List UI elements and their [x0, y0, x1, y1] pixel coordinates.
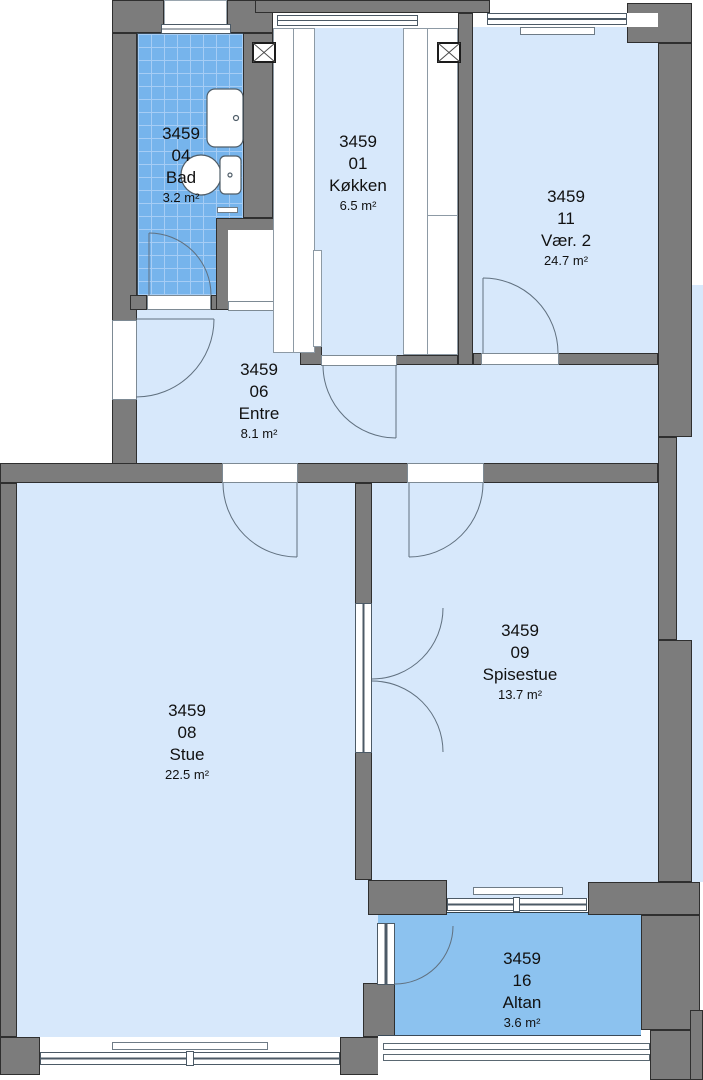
room-vaer2-floor [473, 13, 658, 353]
spisestue-door-opening [407, 463, 484, 483]
room-area: 3.2 m² [162, 189, 200, 206]
room-area: 6.5 m² [329, 197, 387, 214]
floor-plan: 3459 04 Bad 3.2 m² 3459 01 Køkken 6.5 m²… [0, 0, 703, 1080]
room-number: 09 [483, 642, 558, 664]
room-number: 11 [541, 208, 591, 230]
wall-segment [243, 33, 273, 218]
room-name: Entre [239, 403, 280, 425]
bathroom-shelf [217, 207, 238, 213]
wall-segment [112, 33, 137, 322]
bathroom-door-opening [147, 295, 211, 310]
room-area: 3.6 m² [503, 1014, 542, 1031]
room-name: Spisestue [483, 664, 558, 686]
wall-segment [658, 437, 677, 640]
kitchen-counter-left [273, 28, 294, 353]
room-name: Vær. 2 [541, 230, 591, 252]
radiator [112, 1042, 268, 1050]
kitchen-counter-right [403, 28, 428, 355]
kitchen-counter-divider [427, 215, 458, 216]
room-number: 04 [162, 145, 200, 167]
room-number: 08 [165, 722, 209, 744]
kitchen-counter-right [427, 28, 458, 355]
wall-segment [355, 752, 372, 880]
wall-segment [297, 463, 408, 483]
stue-door-opening [222, 463, 298, 483]
vaer2-door-opening [481, 353, 559, 365]
room-label-stue: 3459 08 Stue 22.5 m² [165, 700, 209, 783]
wall-segment [483, 463, 658, 483]
room-number: 01 [329, 153, 387, 175]
spisestue-window-mullion [513, 897, 520, 912]
wall-segment [588, 882, 700, 915]
kitchen-counter-left [293, 28, 315, 353]
balcony-door-frame [377, 923, 395, 985]
balcony-door-recess [357, 915, 378, 987]
entrance-door-opening [112, 320, 137, 400]
wall-segment [130, 295, 147, 310]
bathroom-window [161, 24, 231, 34]
wall-segment [0, 463, 223, 483]
room-area: 8.1 m² [239, 425, 280, 442]
kitchen-door-opening [321, 355, 397, 366]
wall-segment [458, 13, 473, 365]
radiator [520, 27, 595, 35]
room-number: 06 [239, 381, 280, 403]
wall-segment [112, 398, 137, 465]
radiator [473, 887, 563, 895]
room-id: 3459 [239, 359, 280, 381]
room-id: 3459 [541, 186, 591, 208]
bath-window-recess [164, 0, 227, 26]
room-area: 22.5 m² [165, 766, 209, 783]
room-label-entre: 3459 06 Entre 8.1 m² [239, 359, 280, 442]
room-label-altan: 3459 16 Altan 3.6 m² [503, 948, 542, 1031]
room-label-vaer2: 3459 11 Vær. 2 24.7 m² [541, 186, 591, 269]
wall-segment [363, 983, 395, 1037]
wall-segment [658, 640, 692, 882]
neighbour-area-strip [692, 285, 703, 437]
balcony-railing [383, 1043, 650, 1050]
room-name: Bad [162, 167, 200, 189]
stue-window-mullion [186, 1051, 194, 1066]
room-name: Køkken [329, 175, 387, 197]
wall-segment [368, 880, 447, 915]
vaer2-window [487, 13, 627, 25]
room-id: 3459 [165, 700, 209, 722]
room-id: 3459 [162, 123, 200, 145]
wall-segment [658, 43, 692, 437]
room-label-bad: 3459 04 Bad 3.2 m² [162, 123, 200, 206]
room-id: 3459 [329, 131, 387, 153]
wall-segment [355, 483, 372, 605]
balcony-edge [378, 1035, 641, 1036]
room-entre-floor-east [300, 365, 658, 463]
wall-segment [557, 353, 658, 365]
kitchen-tall-unit [313, 250, 322, 347]
wall-segment [0, 483, 17, 1037]
room-id: 3459 [483, 620, 558, 642]
neighbour-area-strip [677, 437, 703, 640]
wall-segment [690, 1010, 703, 1080]
kitchen-window [277, 15, 418, 26]
wall-segment [0, 1037, 40, 1075]
room-name: Altan [503, 992, 542, 1014]
neighbour-area-strip [692, 640, 703, 882]
room-label-spisestue: 3459 09 Spisestue 13.7 m² [483, 620, 558, 703]
balcony-railing [383, 1054, 650, 1061]
room-name: Stue [165, 744, 209, 766]
room-area: 24.7 m² [541, 252, 591, 269]
room-number: 16 [503, 970, 542, 992]
room-id: 3459 [503, 948, 542, 970]
double-door-frame [355, 603, 372, 753]
room-label-kokken: 3459 01 Køkken 6.5 m² [329, 131, 387, 214]
room-area: 13.7 m² [483, 686, 558, 703]
wall-segment [255, 0, 490, 13]
wall-segment [112, 0, 164, 33]
wall-segment [396, 355, 458, 365]
